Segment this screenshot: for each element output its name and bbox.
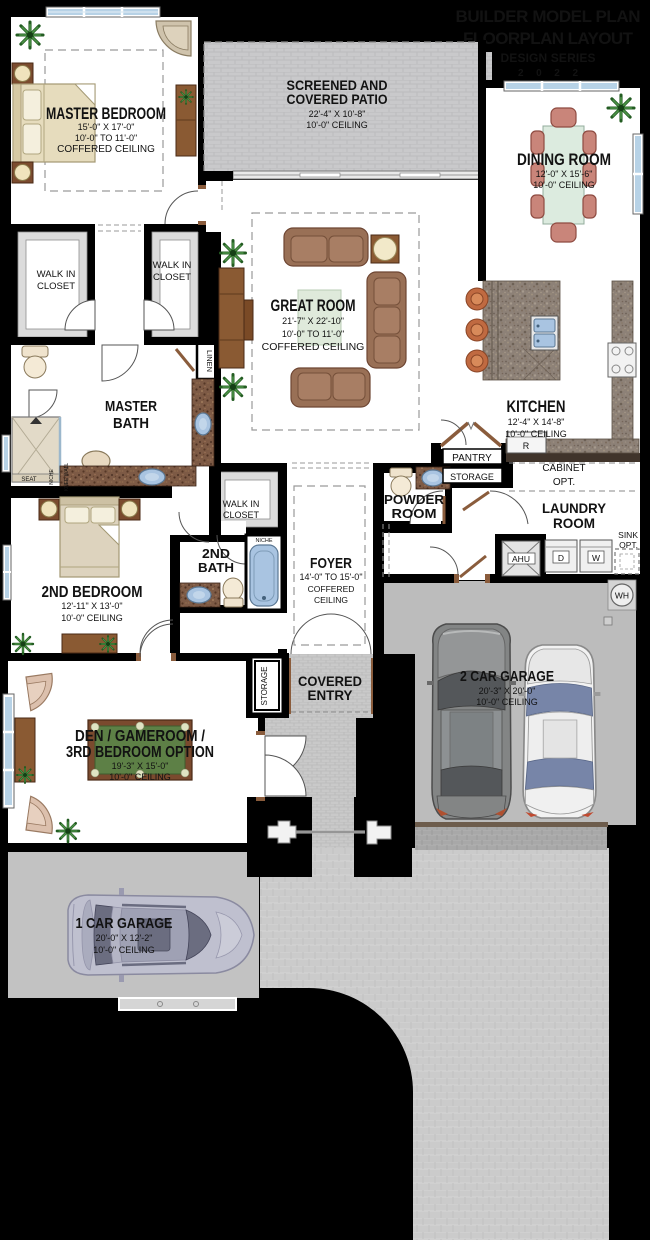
svg-text:21'-7" X 22'-10": 21'-7" X 22'-10" [282,316,344,326]
svg-text:FLOORPLAN LAYOUT: FLOORPLAN LAYOUT [463,29,634,48]
svg-text:R: R [523,441,530,451]
svg-text:2 CAR GARAGE: 2 CAR GARAGE [460,668,554,685]
svg-text:10'-0" CEILING: 10'-0" CEILING [109,772,170,782]
svg-text:19'-3" X 15'-0": 19'-3" X 15'-0" [112,761,169,771]
svg-text:ROOM: ROOM [553,515,595,531]
svg-text:BATH: BATH [198,560,234,575]
svg-text:COFFERED CEILING: COFFERED CEILING [57,144,155,155]
svg-text:10'-0" CEILING: 10'-0" CEILING [93,945,154,955]
svg-text:10'-0" TO 11'-0": 10'-0" TO 11'-0" [75,133,137,143]
svg-text:12'-11" X 13'-0": 12'-11" X 13'-0" [61,601,122,611]
svg-text:10'-0" CEILING: 10'-0" CEILING [61,613,122,623]
svg-text:10'-0" CEILING: 10'-0" CEILING [505,429,566,439]
svg-text:1 CAR GARAGE: 1 CAR GARAGE [76,915,173,932]
svg-text:2ND: 2ND [202,546,230,561]
svg-text:10'-0" CEILING: 10'-0" CEILING [476,697,537,707]
svg-text:LAUNDRY: LAUNDRY [542,500,607,516]
svg-text:3RD BEDROOM OPTION: 3RD BEDROOM OPTION [66,744,214,761]
svg-text:15'-0" X 17'-0": 15'-0" X 17'-0" [78,122,135,132]
svg-text:2ND BEDROOM: 2ND BEDROOM [42,584,143,601]
svg-text:COFFERED CEILING: COFFERED CEILING [262,341,365,353]
svg-text:12'-0" X 15'-6": 12'-0" X 15'-6" [536,169,593,179]
svg-text:FOYER: FOYER [310,555,352,572]
svg-text:STORAGE: STORAGE [450,472,494,482]
svg-text:WALK IN: WALK IN [37,269,76,280]
svg-text:OPT.: OPT. [553,477,575,488]
svg-text:CEILING: CEILING [314,595,348,605]
svg-text:W: W [592,553,600,563]
svg-text:COFFERED: COFFERED [308,584,355,594]
svg-text:CABINET: CABINET [542,463,585,474]
svg-text:GREAT ROOM: GREAT ROOM [271,296,356,315]
svg-text:NICHE: NICHE [49,469,55,485]
svg-text:20'-3" X 20'-0": 20'-3" X 20'-0" [479,686,536,696]
svg-text:POWDER: POWDER [384,492,445,507]
svg-text:CLOSET: CLOSET [153,272,191,283]
svg-text:WALK IN: WALK IN [153,260,192,271]
svg-text:OPT.: OPT. [619,540,638,550]
svg-text:PANTRY: PANTRY [452,453,492,464]
svg-text:D: D [558,553,564,563]
svg-text:14'-0" TO 15'-0": 14'-0" TO 15'-0" [299,572,362,582]
svg-text:LINEN: LINEN [205,350,214,372]
svg-text:DEN / GAMEROOM /: DEN / GAMEROOM / [75,728,206,745]
svg-text:12'-4" X 14'-8": 12'-4" X 14'-8" [508,417,565,427]
svg-text:22'-4" X 10'-8": 22'-4" X 10'-8" [309,109,366,119]
svg-text:KITCHEN: KITCHEN [507,397,566,416]
svg-text:10'-0" CEILING: 10'-0" CEILING [306,120,367,130]
svg-text:10'-0" TO 11'-0": 10'-0" TO 11'-0" [282,329,344,339]
svg-text:ROOM: ROOM [392,506,437,521]
svg-text:AHU: AHU [512,554,530,564]
svg-text:DESIGN SERIES: DESIGN SERIES [501,51,596,65]
svg-text:BUILDER MODEL PLAN: BUILDER MODEL PLAN [456,7,641,26]
svg-text:10'-0" CEILING: 10'-0" CEILING [533,180,594,190]
svg-text:BATH: BATH [113,415,149,432]
svg-text:WALK IN: WALK IN [223,499,260,509]
svg-text:COVERED PATIO: COVERED PATIO [287,91,388,107]
svg-text:MASTER BEDROOM: MASTER BEDROOM [46,104,166,123]
svg-text:ENTRY: ENTRY [308,688,353,703]
svg-text:CLOSET: CLOSET [223,510,260,520]
svg-text:SEAT: SEAT [21,477,37,483]
svg-text:WH: WH [615,591,629,601]
svg-text:NICHE: NICHE [255,538,272,544]
svg-text:SINK: SINK [618,530,638,540]
svg-text:STORAGE: STORAGE [260,667,269,706]
svg-text:CLOSET: CLOSET [37,281,75,292]
svg-text:COVERED: COVERED [298,674,362,689]
svg-text:MASTER: MASTER [105,398,157,415]
svg-text:DINING ROOM: DINING ROOM [517,150,611,169]
svg-text:20'-0" X 12'-2": 20'-0" X 12'-2" [96,933,153,943]
svg-text:KNEE WALL: KNEE WALL [64,463,70,492]
